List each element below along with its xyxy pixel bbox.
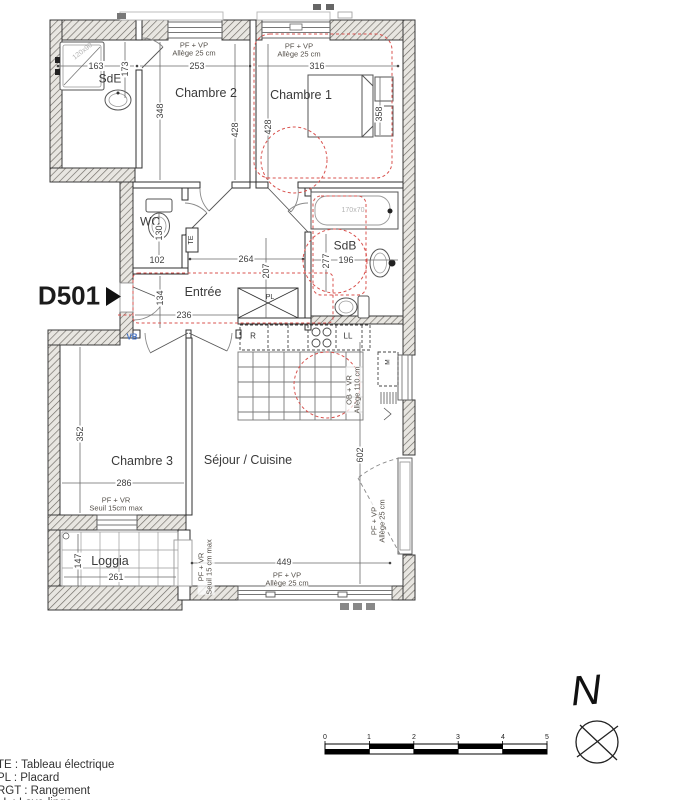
dimension-label-277: 277 [321, 252, 331, 269]
dimension-label-602: 602 [355, 446, 365, 463]
dimension-label-316: 316 [308, 61, 325, 71]
window-annotation-kitchen: OB + VR Allège 110 cm [346, 367, 363, 414]
dimension-label-134: 134 [155, 289, 165, 306]
dimension-label-196: 196 [337, 255, 354, 265]
dimension-label-130: 130 [154, 224, 164, 241]
label-vb: VB [126, 334, 137, 343]
legend-line-pl: PL : Placard [0, 772, 59, 785]
dimension-label-449: 449 [275, 557, 292, 567]
dimension-label-207: 207 [261, 262, 271, 279]
dimension-label-428-left: 428 [230, 121, 240, 138]
legend-line-te: TE : Tableau électrique [0, 759, 114, 772]
label-m: M [384, 359, 391, 364]
dimension-label-163: 163 [87, 61, 104, 71]
dimension-label-173: 173 [120, 60, 130, 77]
room-label-sejour-cuisine: Séjour / Cuisine [204, 453, 292, 467]
north-letter: N [569, 665, 603, 714]
label-te: TE [188, 236, 196, 245]
scale-tick-0: 0 [323, 734, 327, 742]
room-label-sdb: SdB [334, 239, 357, 252]
dimension-label-428-right: 428 [263, 118, 273, 135]
dimension-label-286: 286 [115, 478, 132, 488]
window-annotation-top-right: PF + VP Allège 25 cm [277, 43, 320, 60]
dimension-label-253: 253 [188, 61, 205, 71]
room-label-chambre2: Chambre 2 [175, 86, 237, 100]
window-annotation-chambre3: PF + VR Seuil 15cm max [89, 497, 142, 514]
dimension-label-102: 102 [148, 255, 165, 265]
window-annotation-bottom: PF + VP Allège 25 cm [265, 572, 308, 589]
label-ll: LL [344, 333, 353, 342]
scale-tick-2: 2 [412, 734, 416, 742]
label-layer: SdEChambre 2Chambre 1WCEntréeSdBChambre … [0, 0, 678, 800]
unit-label-d501: D501 [38, 281, 100, 310]
dimension-label-348: 348 [155, 102, 165, 119]
dimension-label-236: 236 [175, 310, 192, 320]
dimension-label-358: 358 [374, 105, 384, 122]
legend-line-rgt: RGT : Rangement [0, 785, 90, 798]
room-label-loggia: Loggia [91, 554, 129, 568]
label-r: R [250, 333, 256, 342]
scale-tick-3: 3 [456, 734, 460, 742]
window-annotation-loggia: PF + VR Seuil 15 cm max [198, 539, 215, 594]
scale-tick-5: 5 [545, 734, 549, 742]
scale-tick-4: 4 [501, 734, 505, 742]
dimension-label-352: 352 [75, 425, 85, 442]
room-label-chambre3: Chambre 3 [111, 454, 173, 468]
dimension-label-261: 261 [107, 572, 124, 582]
window-annotation-top-left: PF + VP Allège 25 cm [172, 42, 215, 59]
floor-plan-page: SdEChambre 2Chambre 1WCEntréeSdBChambre … [0, 0, 678, 800]
dimension-label-264: 264 [237, 254, 254, 264]
fixture-size-bathtub: 170x70 [342, 207, 365, 215]
room-label-chambre1: Chambre 1 [270, 88, 332, 102]
label-pl: PL [266, 294, 275, 302]
scale-tick-1: 1 [367, 734, 371, 742]
fixture-size-shower: 120x90 [72, 42, 95, 62]
window-annotation-right: PF + VP Allège 25 cm [371, 499, 388, 542]
room-label-sde: SdE [99, 72, 122, 85]
room-label-entree: Entrée [185, 285, 222, 299]
dimension-label-147: 147 [73, 552, 83, 569]
